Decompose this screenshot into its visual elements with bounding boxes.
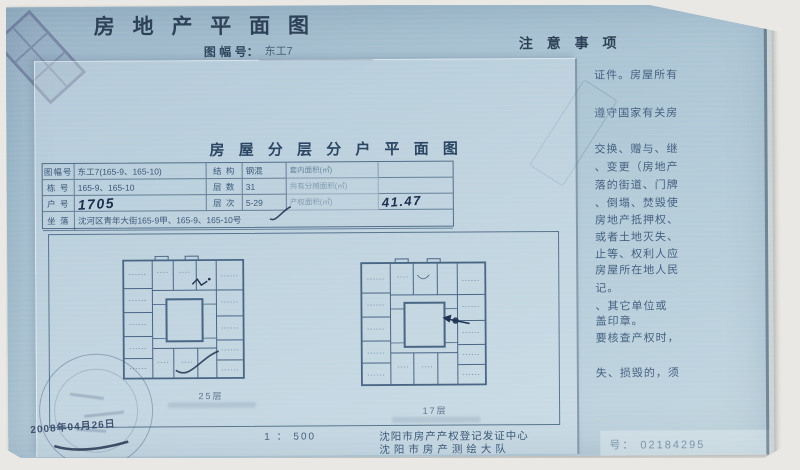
photo-margin-bottom (0, 458, 800, 470)
faint-caption-smudge (392, 416, 480, 423)
pen-stroke-icon (50, 437, 135, 458)
sheet-number-label: 图 幅 号： (204, 45, 259, 59)
floor-plan-left (119, 252, 250, 385)
serial-number: 号： 02184295 (609, 436, 705, 453)
notice-line: 要核查产权时， (596, 329, 680, 346)
notice-line: 、倒塌、焚毁使 (595, 194, 679, 211)
table-label: 层 数 (207, 179, 243, 195)
faint-caption-smudge (168, 402, 256, 409)
table-label: 套内面积(㎡) (287, 162, 379, 179)
table-value: 165-9、165-10 (75, 179, 207, 196)
notice-line: 交换、赠与、继 (594, 140, 678, 157)
table-value (379, 162, 453, 178)
scale-text: 1 ： 500 (264, 427, 316, 442)
plan-subtitle: 房 屋 分 层 分 户 平 面 图 (209, 138, 462, 161)
plan-caption-left: 25层 (176, 389, 246, 402)
notice-line: 记。 (595, 280, 619, 296)
handwritten-unit-arrow-icon (443, 315, 470, 324)
scanned-document: 房 地 产 平 面 图 图 幅 号：东工7 注 意 事 项 证件。房屋所有 遵守… (6, 3, 775, 460)
sheet-number-value: 东工7 (259, 42, 373, 61)
notice-line: 房屋所在地人民 (595, 261, 679, 278)
handwritten-area-value: 41.47 (381, 193, 422, 210)
notice-line: 、其它单位或 (595, 297, 667, 313)
table-label: 共有分摊面积(㎡) (287, 178, 379, 195)
table-label: 层 次 (207, 195, 243, 211)
notice-line: 、变更（房地产 (595, 158, 679, 175)
notice-line: 盖印章。 (596, 312, 644, 328)
table-label: 图幅号 (43, 164, 75, 180)
page-title: 房 地 产 平 面 图 (94, 9, 315, 40)
info-table: 图幅号 东工7(165-9、165-10) 结 构 钢混 套内面积(㎡) 栋 号… (42, 161, 454, 230)
notice-line: 证件。房屋所有 (594, 66, 678, 83)
table-label: 坐 落 (43, 212, 75, 231)
plan-caption-right: 17层 (400, 404, 470, 417)
photo-margin-left (0, 0, 6, 470)
notice-line: 或者土地灭失、 (595, 228, 679, 245)
handwritten-check-icon (265, 203, 305, 225)
table-value: 钢混 (243, 163, 287, 179)
notice-line: 失、损毁的，须 (596, 364, 680, 381)
table-value: 31 (243, 179, 287, 195)
handwritten-unit-number: 1705 (77, 194, 115, 212)
notice-line: 落的街道、门牌 (595, 176, 679, 193)
table-value: 东工7(165-9、165-10) (75, 163, 207, 180)
table-value (379, 178, 453, 194)
handwritten-marks-left (175, 278, 219, 373)
issuer-line-2: 沈阳市房产测绘大队 (379, 441, 510, 457)
notice-text-column: 证件。房屋所有 遵守国家有关房 交换、赠与、继 、变更（房地产 落的街道、门牌 … (594, 3, 757, 424)
notice-line: 止等、权利人应 (595, 245, 679, 262)
table-label: 栋 号 (43, 180, 75, 196)
floor-plan-right (357, 254, 492, 391)
table-label: 结 构 (207, 163, 243, 179)
table-label: 户 号 (43, 196, 75, 212)
notice-line: 房地产抵押权、 (595, 211, 679, 228)
